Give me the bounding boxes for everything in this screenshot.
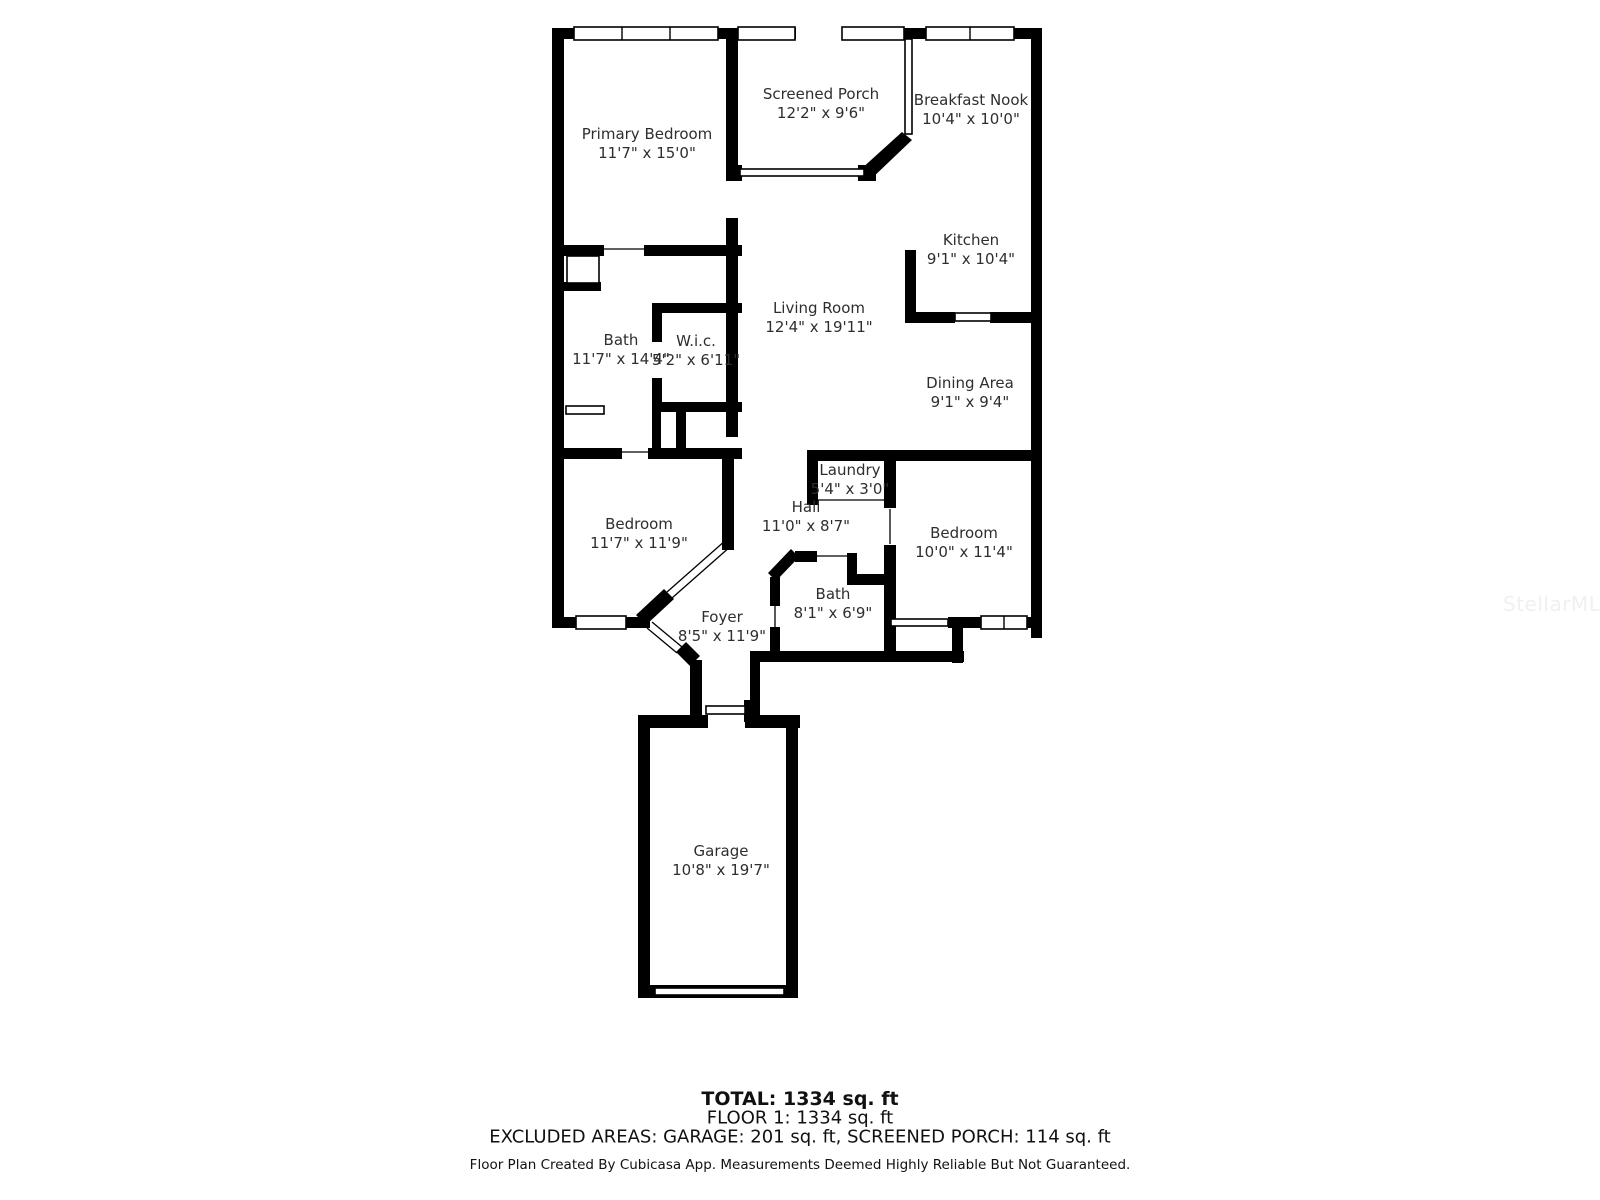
room-label-kitchen: Kitchen 9'1" x 10'4": [927, 231, 1015, 269]
room-dims: 8'1" x 6'9": [794, 604, 873, 623]
room-label-bedroom-left: Bedroom 11'7" x 11'9": [590, 515, 688, 553]
room-name: W.i.c.: [652, 332, 740, 351]
room-dims: 12'2" x 9'6": [763, 104, 879, 123]
room-name: Bedroom: [915, 524, 1013, 543]
room-dims: 11'7" x 11'9": [590, 534, 688, 553]
room-dims: 5'2" x 6'11": [652, 351, 740, 370]
room-name: Living Room: [765, 299, 872, 318]
room-dims: 10'0" x 11'4": [915, 543, 1013, 562]
room-label-screened-porch: Screened Porch 12'2" x 9'6": [763, 85, 879, 123]
room-dims: 9'1" x 10'4": [927, 250, 1015, 269]
room-name: Bath: [794, 585, 873, 604]
room-name: Screened Porch: [763, 85, 879, 104]
room-name: Foyer: [678, 608, 766, 627]
room-dims: 10'8" x 19'7": [672, 861, 770, 880]
room-name: Laundry: [811, 461, 890, 480]
room-dims: 8'5" x 11'9": [678, 627, 766, 646]
room-label-foyer: Foyer 8'5" x 11'9": [678, 608, 766, 646]
room-name: Bedroom: [590, 515, 688, 534]
room-name: Hall: [762, 498, 850, 517]
room-label-bedroom-right: Bedroom 10'0" x 11'4": [915, 524, 1013, 562]
room-dims: 11'0" x 8'7": [762, 517, 850, 536]
disclaimer-text: Floor Plan Created By Cubicasa App. Meas…: [470, 1157, 1131, 1173]
room-dims: 5'4" x 3'0": [811, 480, 890, 499]
room-name: Garage: [672, 842, 770, 861]
room-label-laundry: Laundry 5'4" x 3'0": [811, 461, 890, 499]
room-label-primary-bedroom: Primary Bedroom 11'7" x 15'0": [582, 125, 713, 163]
room-name: Kitchen: [927, 231, 1015, 250]
watermark-stellar-mls: StellarMLS: [1503, 592, 1600, 616]
room-label-living-room: Living Room 12'4" x 19'11": [765, 299, 872, 337]
room-label-bath: Bath 8'1" x 6'9": [794, 585, 873, 623]
excluded-areas-text: EXCLUDED AREAS: GARAGE: 201 sq. ft, SCRE…: [489, 1127, 1110, 1148]
room-dims: 10'4" x 10'0": [914, 110, 1028, 129]
room-label-dining-area: Dining Area 9'1" x 9'4": [926, 374, 1014, 412]
floor-plan-page: Primary Bedroom 11'7" x 15'0" Screened P…: [0, 0, 1600, 1200]
floor-area-text: FLOOR 1: 1334 sq. ft: [707, 1108, 893, 1129]
room-name: Breakfast Nook: [914, 91, 1028, 110]
room-dims: 11'7" x 15'0": [582, 144, 713, 163]
room-name: Dining Area: [926, 374, 1014, 393]
room-dims: 9'1" x 9'4": [926, 393, 1014, 412]
room-name: Primary Bedroom: [582, 125, 713, 144]
room-label-garage: Garage 10'8" x 19'7": [672, 842, 770, 880]
room-label-breakfast-nook: Breakfast Nook 10'4" x 10'0": [914, 91, 1028, 129]
room-label-wic: W.i.c. 5'2" x 6'11": [652, 332, 740, 370]
room-dims: 12'4" x 19'11": [765, 318, 872, 337]
room-label-hall: Hall 11'0" x 8'7": [762, 498, 850, 536]
wall-gaps-group: [796, 26, 842, 41]
